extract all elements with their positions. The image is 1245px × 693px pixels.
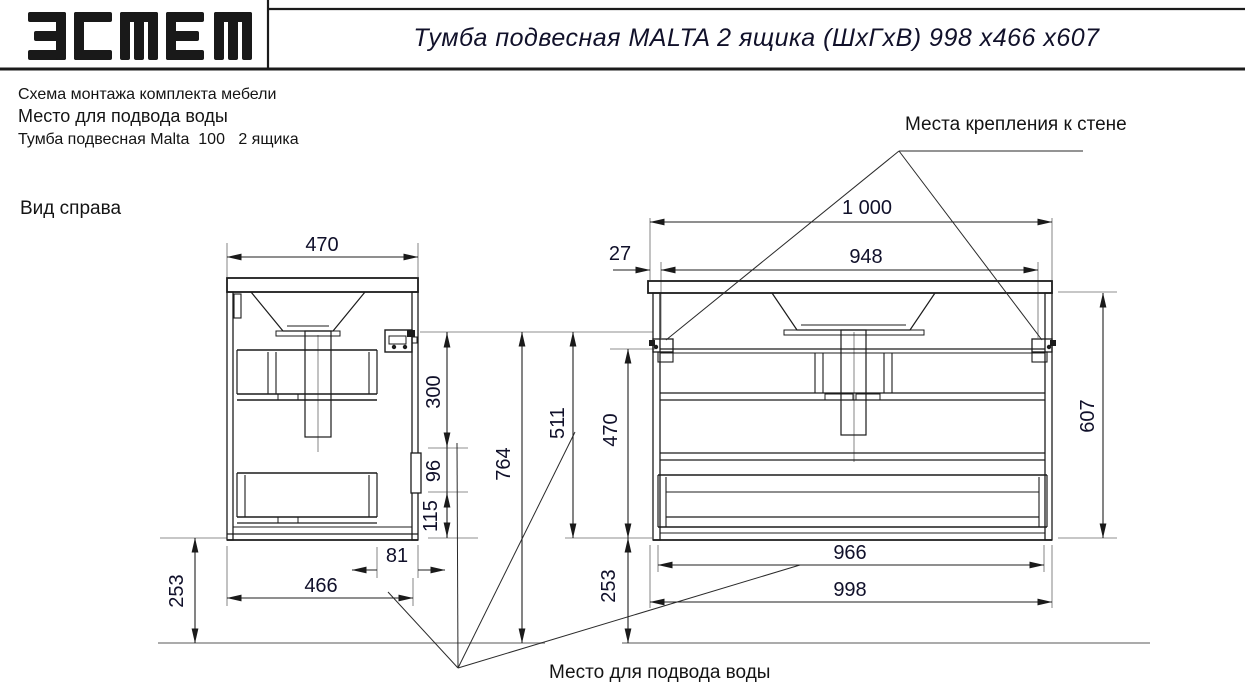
dim-wall-to-bottom: 511 [547, 407, 569, 439]
dim-front-width: 998 [833, 579, 866, 601]
drawing-sheet: эстет Тумба подвесная MALTA 2 ящика [0, 0, 1245, 693]
brand-logo: эстет [28, 12, 252, 65]
dim-front-floor: 253 [598, 569, 620, 602]
dim-front-mount-span: 948 [849, 246, 882, 268]
legend-item: Тумба подвесная Malta 100 2 ящика [18, 131, 299, 149]
side-view-drawing [227, 278, 421, 540]
legend-water: Место для подвода воды [18, 106, 299, 127]
dim-front-edge-offset: 27 [609, 243, 631, 265]
dim-side-300: 300 [423, 375, 445, 408]
front-view-drawing [648, 281, 1052, 540]
legend-scheme: Схема монтажа комплекта мебели [18, 86, 299, 104]
side-view-wall-bracket [385, 330, 417, 352]
dim-side-96: 96 [423, 460, 445, 482]
legend-block: Схема монтажа комплекта мебели Место для… [18, 86, 299, 149]
water-supply-label: Место для подвода воды [549, 662, 770, 684]
water-supply-leaders [388, 432, 800, 668]
dim-front-overall: 1 000 [842, 197, 892, 219]
sheet-title: Тумба подвесная MALTA 2 ящика (ШхГхВ) 99… [268, 9, 1245, 67]
dim-side-width: 470 [305, 234, 338, 256]
dim-side-floor: 253 [166, 574, 188, 607]
dim-front-inner-h: 470 [600, 413, 622, 446]
dim-side-81: 81 [386, 545, 408, 567]
side-view-label: Вид справа [20, 198, 121, 220]
dim-total-height: 764 [493, 447, 515, 480]
front-view-wall-brackets [649, 339, 1056, 362]
wall-mount-label: Места крепления к стене [905, 114, 1127, 136]
dim-front-height: 607 [1077, 399, 1099, 432]
dim-side-depth: 466 [304, 575, 337, 597]
dimension-labels: 470 300 96 115 81 466 253 764 511 470 25… [166, 197, 1099, 608]
dim-side-115: 115 [420, 500, 442, 532]
dim-front-inner-w: 966 [833, 542, 866, 564]
brand-logo-mark [28, 12, 252, 60]
